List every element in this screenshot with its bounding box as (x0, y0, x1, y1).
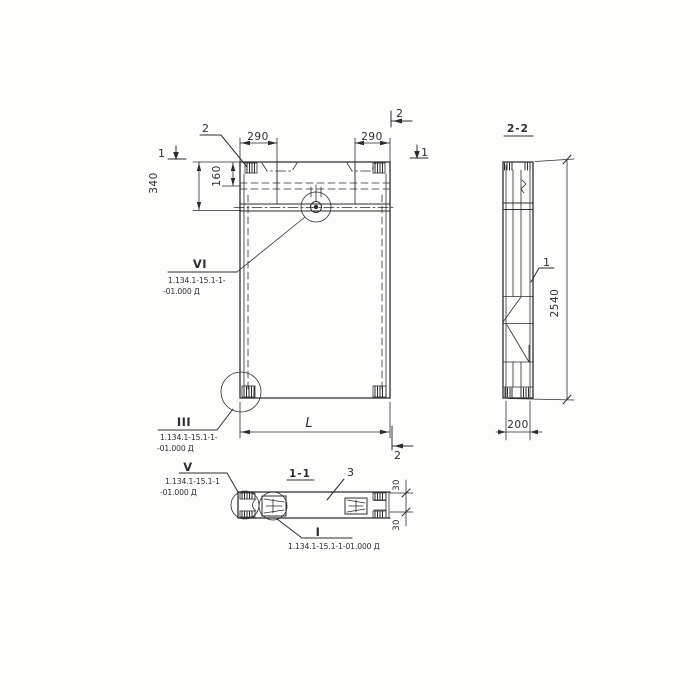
dim-290-left: 290 (240, 131, 277, 190)
dim-290-right-text: 290 (361, 131, 383, 143)
dim-2540: 2540 (508, 155, 574, 404)
side-top-hatch (505, 163, 531, 170)
dim-length: L (240, 402, 390, 438)
dim-290-right: 290 (355, 131, 390, 190)
blueprint-page: 290 290 160 340 (0, 0, 700, 700)
side-joint-detail (503, 297, 533, 363)
leader-1-text: 1 (543, 256, 550, 269)
dim-290-left-text: 290 (247, 131, 269, 143)
callout-vi-roman: VI (193, 257, 207, 271)
callout-vi-line1: 1.134.1-15.1-1- (168, 276, 226, 285)
side-bottom-hatch (503, 387, 533, 397)
callout-i-label: 1.134.1-15.1-1-01.000 Д (288, 542, 380, 551)
dim-30-top: 30 (390, 479, 413, 526)
section-mark-2-bottom-text: 2 (394, 449, 401, 462)
side-outline (503, 162, 533, 398)
section-mark-2-bottom: 2 (392, 426, 413, 462)
technical-drawing: 290 290 160 340 (0, 0, 700, 700)
section-tube-left (259, 492, 287, 520)
section-mark-2-top: 2 (391, 107, 412, 127)
section-mark-2-top-text: 2 (396, 107, 403, 120)
hatch-block-bottom-right (373, 386, 386, 397)
leader-2-text: 2 (202, 122, 209, 135)
hatch-block-bottom-left (242, 386, 255, 397)
top-band (234, 162, 396, 211)
dim-30-bottom: 30 (392, 508, 410, 531)
recess-left (262, 163, 297, 171)
section-mark-1-right: 1 (410, 145, 428, 159)
callout-vi: VI 1.134.1-15.1-1- -01.000 Д (163, 257, 237, 296)
callout-iii-line1: 1.134.1-15.1-1- (160, 433, 218, 442)
callout-i-roman: I (316, 525, 321, 539)
section-title-text: 1-1 (289, 468, 311, 480)
hatch-block-top-left (245, 163, 257, 173)
dim-200-text: 200 (507, 419, 529, 431)
callout-iii-line2: -01.000 Д (157, 444, 194, 453)
panel-outline (240, 162, 390, 398)
callout-v-line2: -01.000 Д (160, 488, 197, 497)
callout-iii-roman: III (177, 415, 191, 429)
dim-160: 160 (211, 162, 241, 187)
dim-2540-text: 2540 (549, 289, 561, 318)
side-view: 2-2 (496, 123, 574, 440)
callout-v-roman: V (183, 460, 192, 474)
section-tube-middle (345, 498, 367, 514)
callout-vi-line2: -01.000 Д (163, 287, 200, 296)
section-mark-1-left-text: 1 (158, 147, 165, 160)
section-right-end (373, 493, 386, 518)
callout-iii: III 1.134.1-15.1-1- -01.000 Д (157, 409, 233, 453)
side-title-text: 2-2 (507, 123, 529, 135)
section-mark-1-left: 1 (158, 146, 186, 160)
dim-340-text: 340 (148, 172, 160, 194)
dim-length-text: L (305, 416, 312, 431)
section-left-end (231, 491, 259, 519)
callout-i: I 1.134.1-15.1-1-01.000 Д (277, 519, 380, 551)
section-view: 1-1 3 (231, 466, 413, 531)
leader-3: 3 (327, 466, 354, 500)
leader-3-text: 3 (347, 466, 354, 479)
detail-circle-vi (237, 185, 331, 272)
recess-right (347, 163, 376, 171)
section-title: 1-1 (287, 468, 314, 480)
dim-160-text: 160 (211, 165, 223, 187)
callout-v-line1: 1.134.1-15.1-1 (165, 477, 220, 486)
section-mark-1-right-text: 1 (421, 146, 428, 159)
dim-30-top-text: 30 (392, 479, 402, 490)
dim-200: 200 (496, 401, 542, 440)
side-title: 2-2 (504, 123, 533, 136)
callout-v: V 1.134.1-15.1-1 -01.000 Д (160, 460, 238, 497)
leader-1: 1 (531, 256, 554, 282)
dim-30-bottom-text: 30 (392, 519, 402, 530)
